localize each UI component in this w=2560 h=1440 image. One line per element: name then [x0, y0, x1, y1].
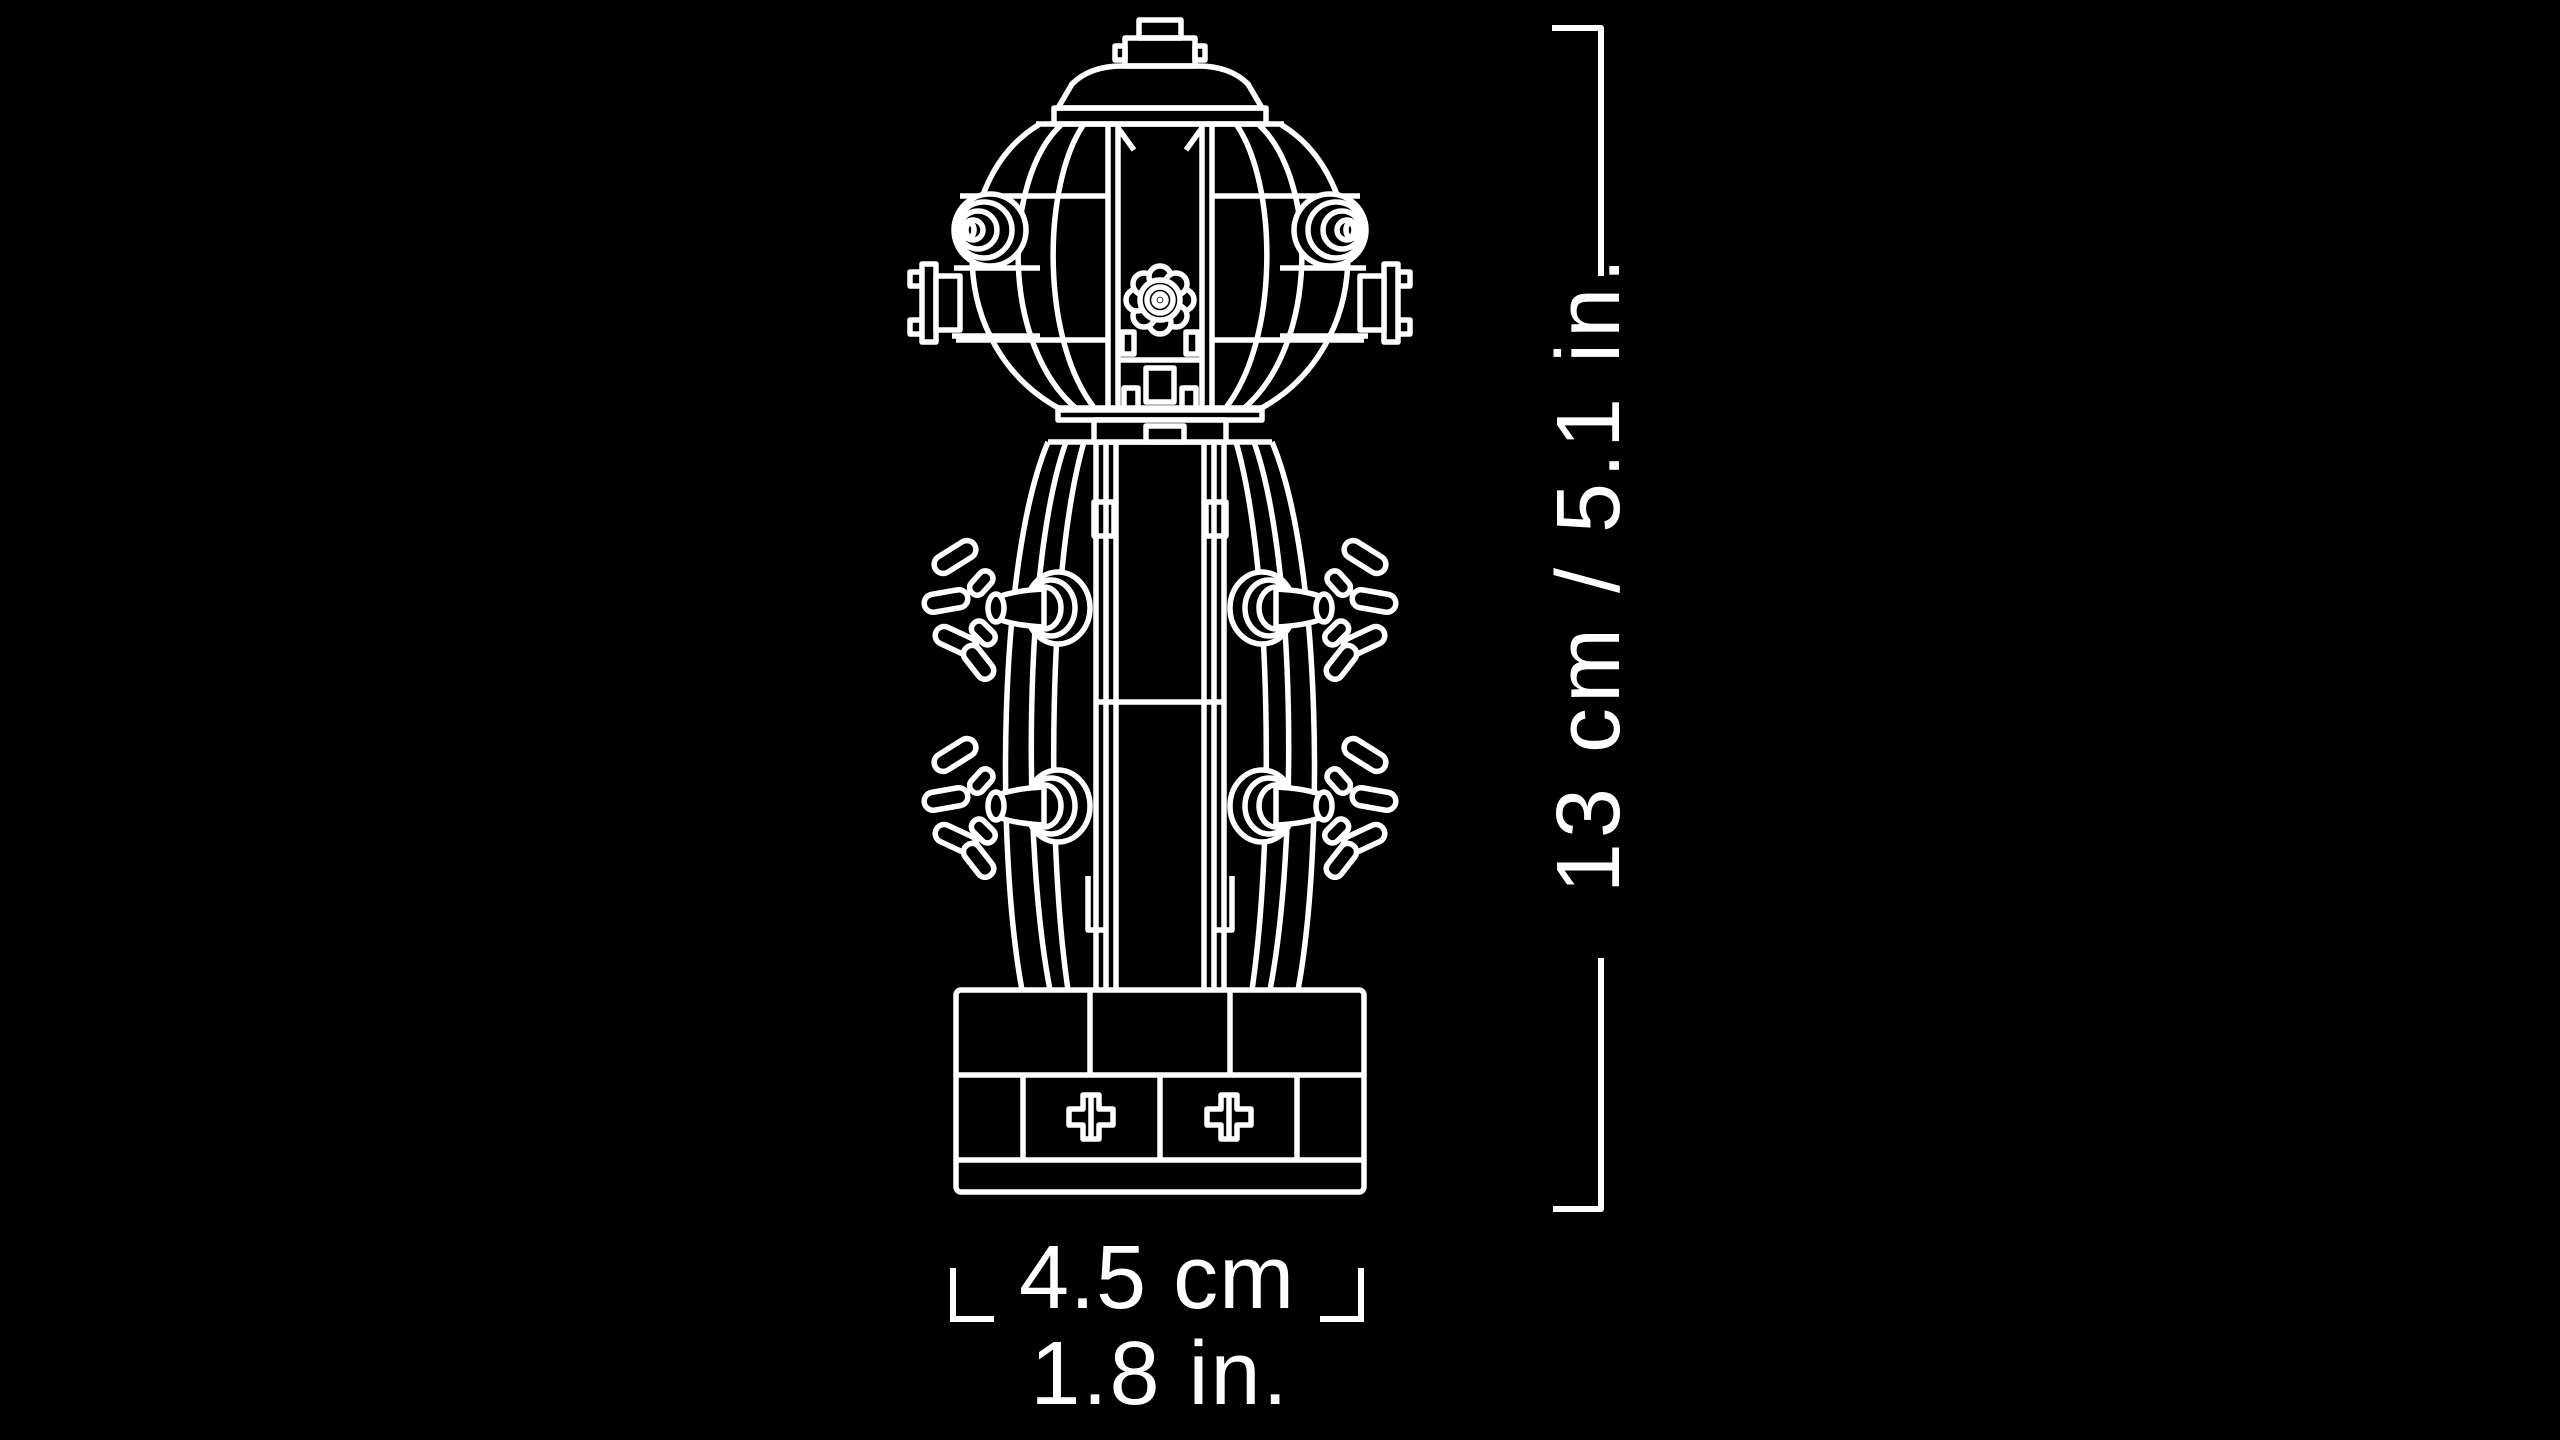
- upper-barrel: [910, 124, 1410, 410]
- width-dimension-label-cm: 4.5 cm: [1019, 1226, 1295, 1330]
- width-dimension-row: 4.5 cm: [950, 1226, 1364, 1330]
- side-ports: [954, 194, 1366, 266]
- dimension-corner-right-icon: [1320, 1268, 1364, 1322]
- width-dimension-label-in: 1.8 in.: [960, 1324, 1360, 1424]
- splash-nozzles: [923, 537, 1397, 880]
- flower-valve: [1126, 266, 1194, 334]
- height-dimension-label: 13 cm / 5.1 in.: [1539, 223, 1639, 923]
- top-cap: [1054, 20, 1266, 124]
- dimension-corner-left-icon: [950, 1268, 994, 1322]
- model-illustration: [0, 0, 2560, 1440]
- lower-barrel: [923, 442, 1397, 990]
- product-dimension-image: 13 cm / 5.1 in. 4.5 cm 1.8 in.: [0, 0, 2560, 1440]
- brick-base: [956, 990, 1364, 1192]
